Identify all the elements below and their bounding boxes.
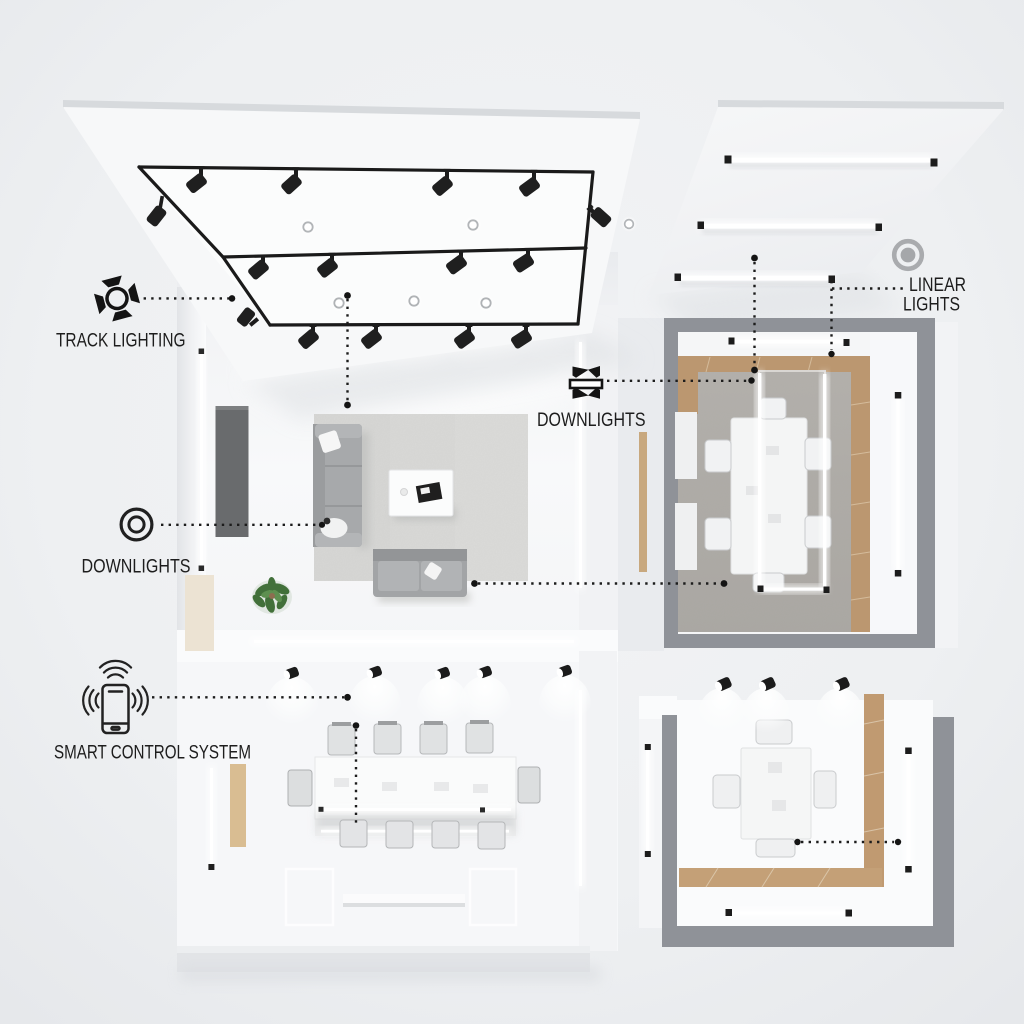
svg-text:SMART CONTROL SYSTEM: SMART CONTROL SYSTEM	[54, 742, 251, 764]
svg-text:LIGHTS: LIGHTS	[903, 294, 960, 316]
svg-text:TRACK LIGHTING: TRACK LIGHTING	[56, 330, 186, 352]
svg-text:DOWNLIGHTS: DOWNLIGHTS	[537, 409, 646, 431]
svg-text:DOWNLIGHTS: DOWNLIGHTS	[82, 556, 191, 578]
